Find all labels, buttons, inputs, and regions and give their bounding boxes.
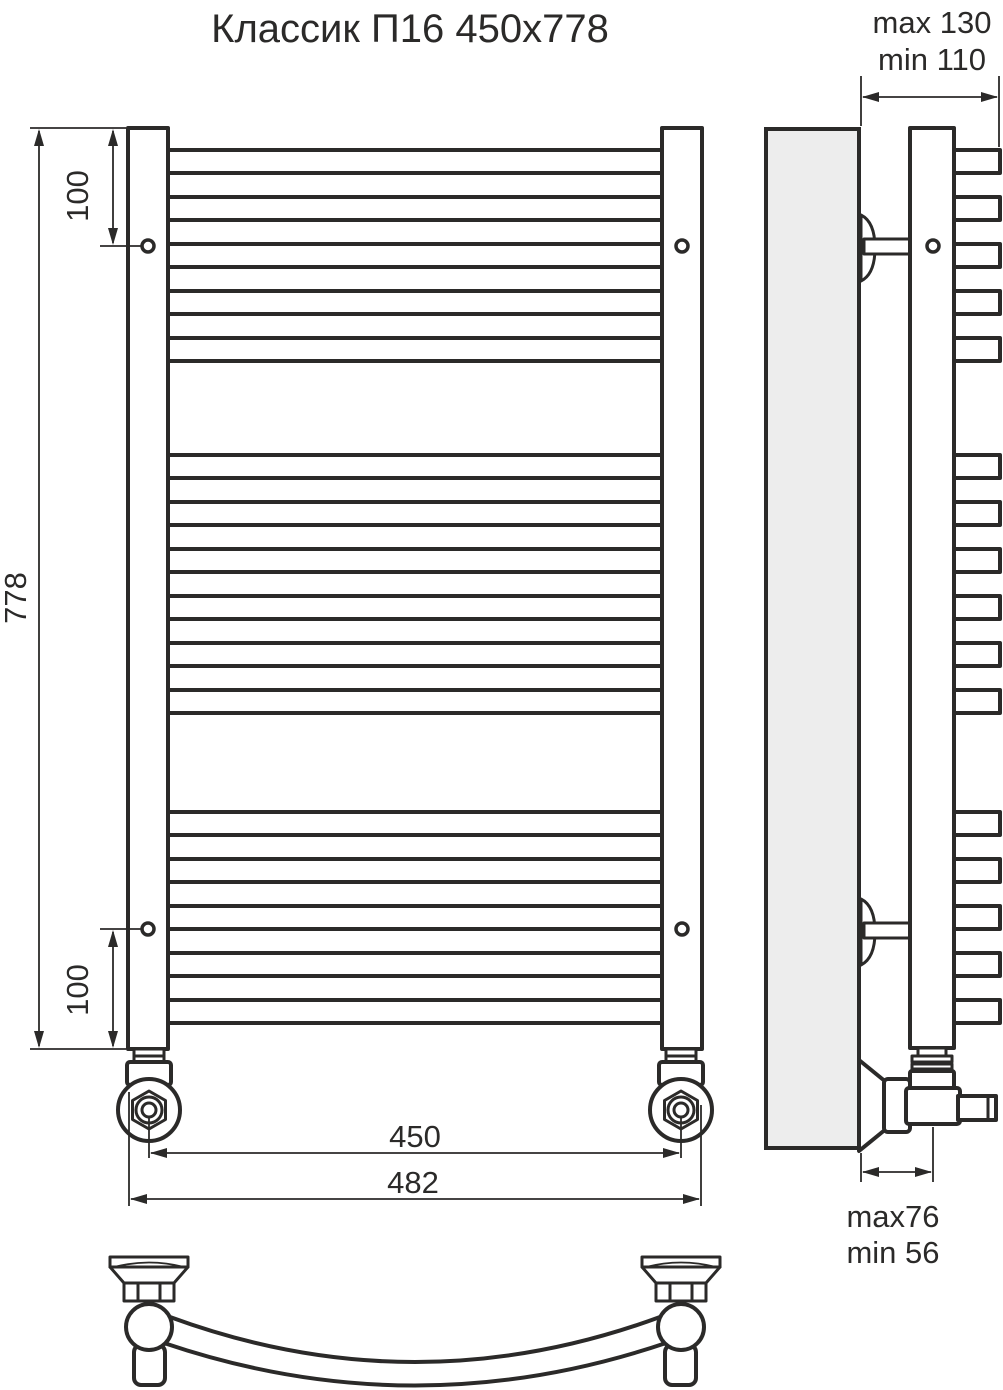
rung <box>166 906 664 929</box>
mount-hole-bottom-left <box>142 923 154 935</box>
dim-label-778: 778 <box>0 572 33 624</box>
dim-depth: max 130 min 110 <box>861 5 999 147</box>
front-left-collector <box>128 128 168 1049</box>
rung-stub <box>952 197 1000 220</box>
rung <box>166 244 664 267</box>
side-rung-stubs <box>952 150 1000 1023</box>
rung <box>166 150 664 173</box>
mount-hole-bottom-right <box>676 923 688 935</box>
rung-stub <box>952 859 1000 882</box>
rung-stub <box>952 150 1000 173</box>
wall-section <box>766 129 859 1148</box>
rung-stub <box>952 1000 1000 1023</box>
rung <box>166 812 664 835</box>
dim-overall-height: 778 <box>0 129 44 1048</box>
front-rungs <box>166 150 664 1023</box>
dim-axis-width: 450 <box>149 1117 681 1158</box>
dim-label-axis-depth-max: max76 <box>846 1199 939 1234</box>
side-mount-hole <box>927 240 939 252</box>
side-collector <box>910 128 954 1048</box>
side-view <box>766 128 1000 1151</box>
rung <box>166 197 664 220</box>
rung <box>166 338 664 361</box>
side-valve-assembly <box>859 1048 996 1151</box>
rung <box>166 291 664 314</box>
rung-stub <box>952 455 1000 478</box>
dim-label-depth-max: max 130 <box>873 5 992 40</box>
rung-stub <box>952 953 1000 976</box>
drawing-title: Классик П16 450х778 <box>211 7 609 51</box>
rung-stub <box>952 906 1000 929</box>
rung <box>166 502 664 525</box>
drawing-page: Классик П16 450х778 <box>0 0 1003 1390</box>
rung <box>166 596 664 619</box>
rung <box>166 859 664 882</box>
rung <box>166 953 664 976</box>
curved-rung <box>164 1317 666 1386</box>
rung-stub <box>952 502 1000 525</box>
mount-hole-top-left <box>142 240 154 252</box>
technical-drawing: Классик П16 450х778 <box>0 0 1003 1390</box>
rung-stub <box>952 338 1000 361</box>
dim-label-450: 450 <box>389 1119 441 1154</box>
dim-label-axis-depth-min: min 56 <box>846 1235 939 1270</box>
front-right-collector <box>662 128 702 1049</box>
rung-stub <box>952 812 1000 835</box>
dim-top-offset: 100 <box>60 129 118 245</box>
rung-stub <box>952 549 1000 572</box>
side-bracket-bottom <box>861 899 912 965</box>
mount-hole-top-right <box>676 240 688 252</box>
dim-bottom-offset: 100 <box>60 930 118 1048</box>
rung-stub <box>952 596 1000 619</box>
front-view <box>118 128 712 1141</box>
rung-stub <box>952 643 1000 666</box>
dim-label-100-bottom: 100 <box>60 964 95 1016</box>
rung <box>166 549 664 572</box>
rung-stub <box>952 291 1000 314</box>
rung-stub <box>952 244 1000 267</box>
bottom-view <box>110 1257 720 1386</box>
dim-label-depth-min: min 110 <box>878 42 986 77</box>
rung <box>166 690 664 713</box>
rung-stub <box>952 690 1000 713</box>
dim-label-482: 482 <box>387 1165 439 1200</box>
side-bracket-top <box>861 215 912 281</box>
rung <box>166 455 664 478</box>
rung <box>166 1000 664 1023</box>
dim-label-100-top: 100 <box>60 170 95 222</box>
rung <box>166 643 664 666</box>
